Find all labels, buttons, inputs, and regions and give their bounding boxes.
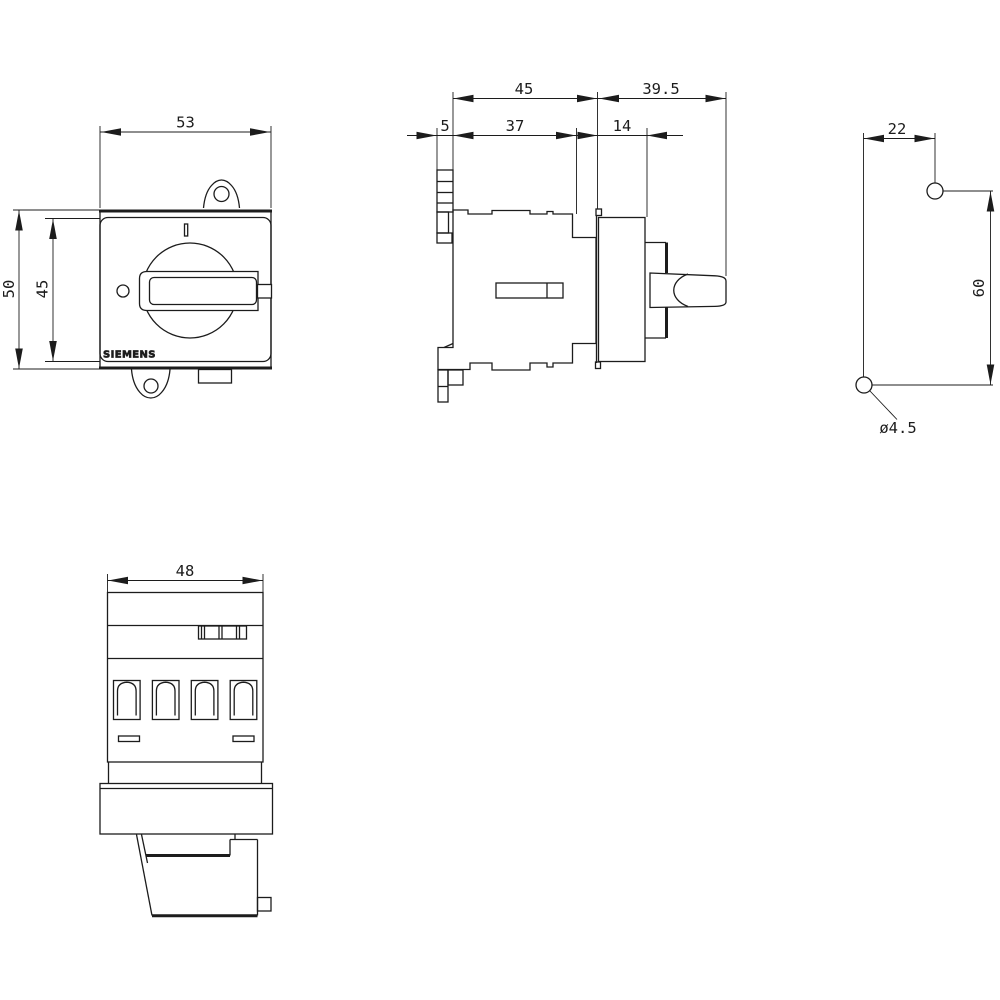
drill-dim-horizontal-pitch: 22 [864,120,936,142]
side-dim-body-depth: 45 [453,80,726,102]
dimension-drawing-page: 53 50 45 [0,0,1000,1000]
side-clip-depth-label: 5 [440,117,449,135]
side-dim-clip-depth: 5 [407,117,683,139]
front-view: 53 50 45 [0,114,272,399]
brand-logo-text: SIEMENS [103,350,156,361]
side-body-depth-label: 45 [515,80,534,98]
side-handle [645,243,726,339]
drill-dim-vertical-pitch: 60 [970,191,994,385]
front-top-mounting-tab [204,180,240,208]
front-bottom-mounting-tab [132,370,171,399]
side-inner-slot [496,283,563,298]
drill-hole-diameter-label: ø4.5 [879,419,916,437]
padlock-hole [117,285,129,297]
bottom-body [108,593,264,763]
front-plate-height-label: 45 [34,280,52,299]
front-handle [140,272,272,311]
side-din-clip-bottom [438,344,463,403]
side-plate-depth-label: 14 [613,117,632,135]
bottom-flange [100,762,273,834]
front-bottom-tab-hole [144,379,158,393]
front-top-tab-hole [214,187,229,202]
front-width-label: 53 [176,114,195,132]
bottom-dim-width: 48 [108,562,264,592]
side-dim-enclosure-depth: 37 [454,117,577,139]
side-front-plate [596,209,646,369]
bottom-width-label: 48 [176,562,195,580]
drawing-svg: 53 50 45 [0,0,1000,1000]
drill-pitch-y-label: 60 [970,279,988,298]
front-dim-plate-height: 45 [34,219,101,362]
drill-pitch-x-label: 22 [888,120,907,138]
side-view: 45 39.5 5 37 14 [407,80,726,402]
bottom-handle [137,835,272,916]
front-dim-width: 53 [100,114,271,209]
side-body-outline [438,210,596,370]
drill-hole-top [927,183,943,199]
front-overall-height-label: 50 [0,280,18,299]
front-handle-nub [258,285,272,299]
bottom-slot-left [119,736,140,742]
bottom-vent-slots [199,626,247,639]
side-handle-depth-label: 39.5 [642,80,679,98]
front-bottom-terminal-block [199,370,232,384]
side-dim-handle-depth: 39.5 [599,80,726,102]
bottom-slot-right [233,736,254,742]
drill-hole-leader [870,391,898,420]
side-dim-plate-depth: 14 [578,117,668,139]
drilling-plan: 22 60 ø4.5 [856,120,994,437]
bottom-terminal-windows [114,681,257,720]
position-i-mark [185,224,188,236]
side-handle-grip [650,273,726,308]
bottom-handle-nub [258,898,272,912]
bottom-view: 48 [100,562,273,916]
side-din-clip-top [437,170,453,243]
side-enclosure-depth-label: 37 [506,117,525,135]
